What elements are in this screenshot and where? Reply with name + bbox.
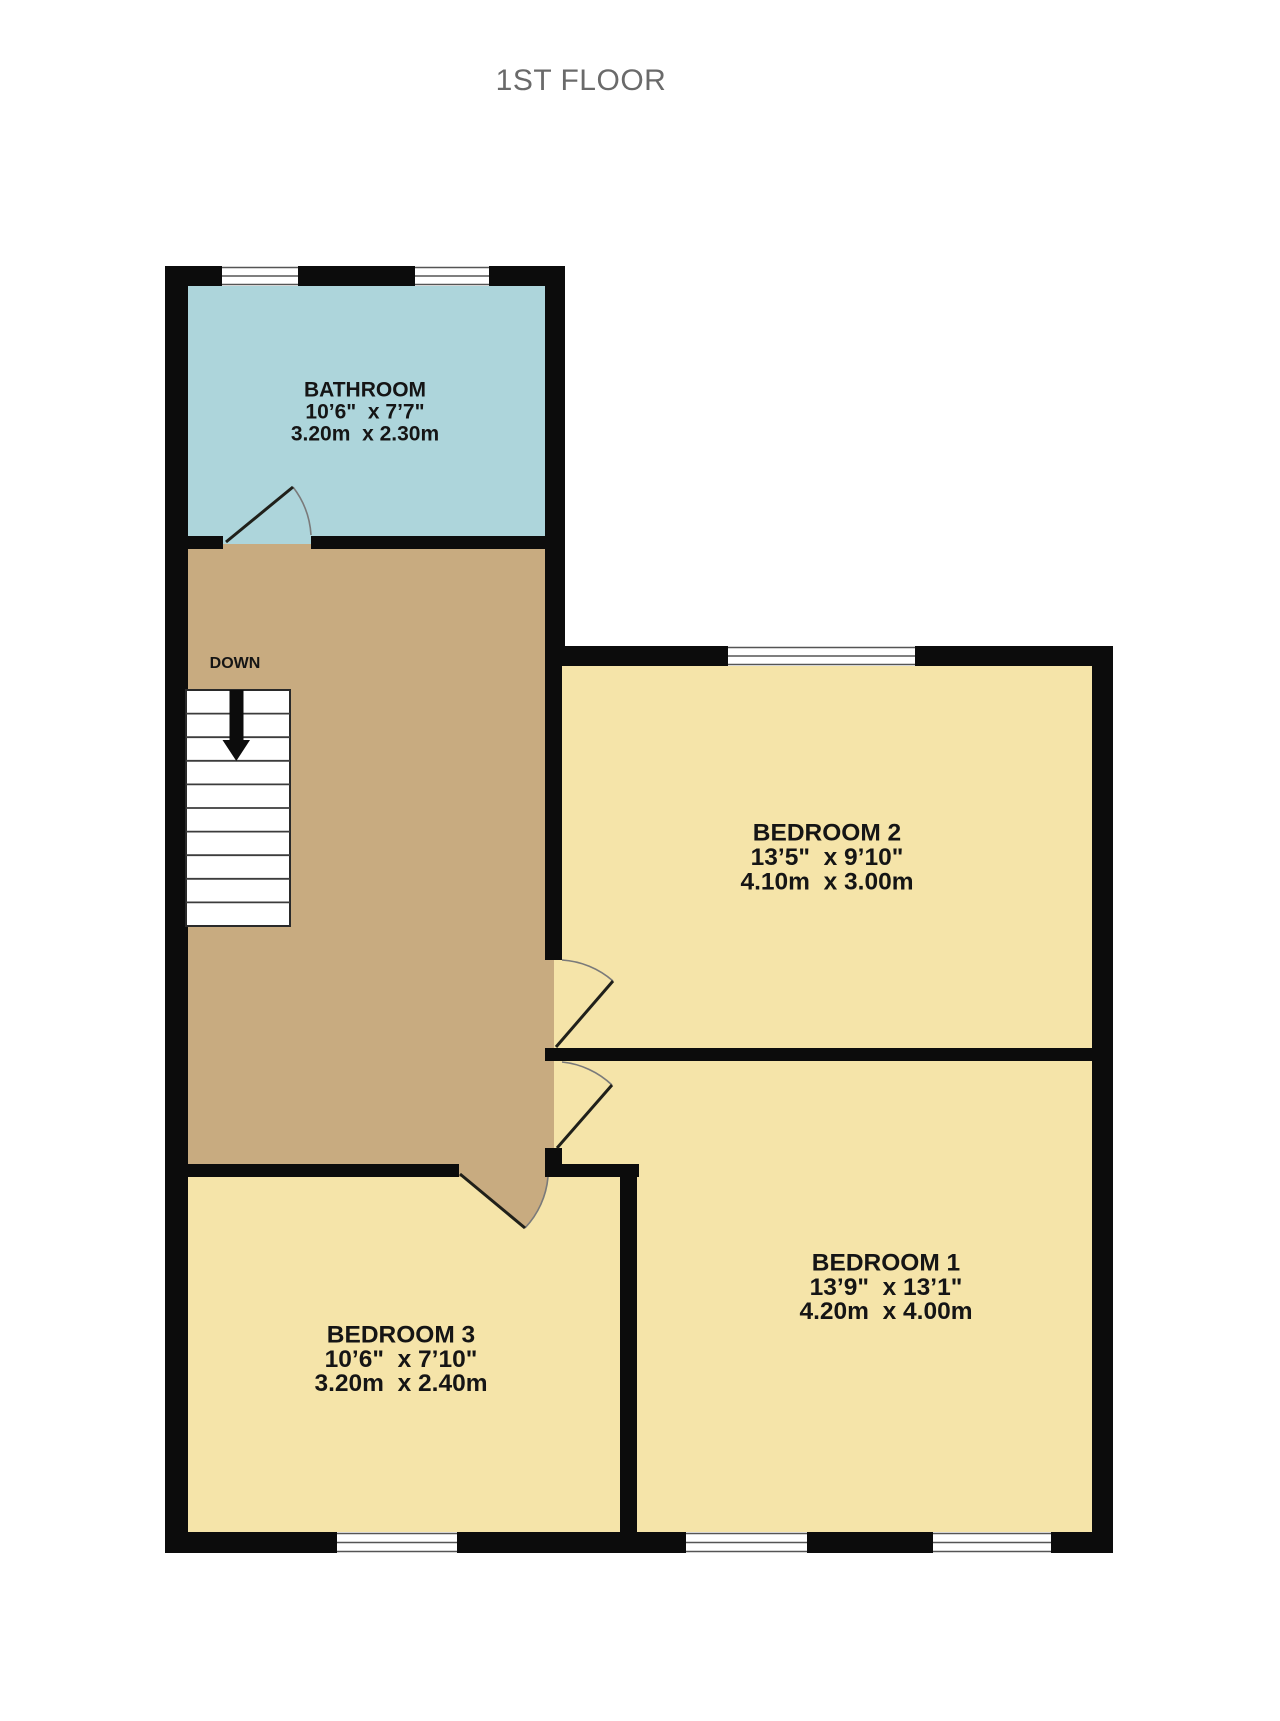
svg-text:1ST FLOOR: 1ST FLOOR bbox=[496, 64, 667, 97]
svg-text:4.20m x 4.00m: 4.20m x 4.00m bbox=[800, 1298, 973, 1325]
svg-text:BEDROOM 1: BEDROOM 1 bbox=[812, 1250, 960, 1277]
svg-text:4.10m x 3.00m: 4.10m x 3.00m bbox=[741, 869, 914, 896]
svg-text:13’5" x 9’10": 13’5" x 9’10" bbox=[751, 844, 904, 871]
svg-text:BEDROOM 2: BEDROOM 2 bbox=[753, 820, 901, 847]
svg-text:DOWN: DOWN bbox=[210, 655, 261, 672]
svg-text:10’6" x 7’7": 10’6" x 7’7" bbox=[305, 401, 424, 424]
svg-text:3.20m x 2.40m: 3.20m x 2.40m bbox=[315, 1370, 488, 1397]
svg-text:BEDROOM 3: BEDROOM 3 bbox=[327, 1322, 475, 1349]
svg-text:10’6" x 7’10": 10’6" x 7’10" bbox=[325, 1346, 478, 1373]
svg-text:BATHROOM: BATHROOM bbox=[304, 379, 426, 402]
svg-text:13’9" x 13’1": 13’9" x 13’1" bbox=[810, 1274, 963, 1301]
svg-text:3.20m x 2.30m: 3.20m x 2.30m bbox=[291, 423, 439, 446]
